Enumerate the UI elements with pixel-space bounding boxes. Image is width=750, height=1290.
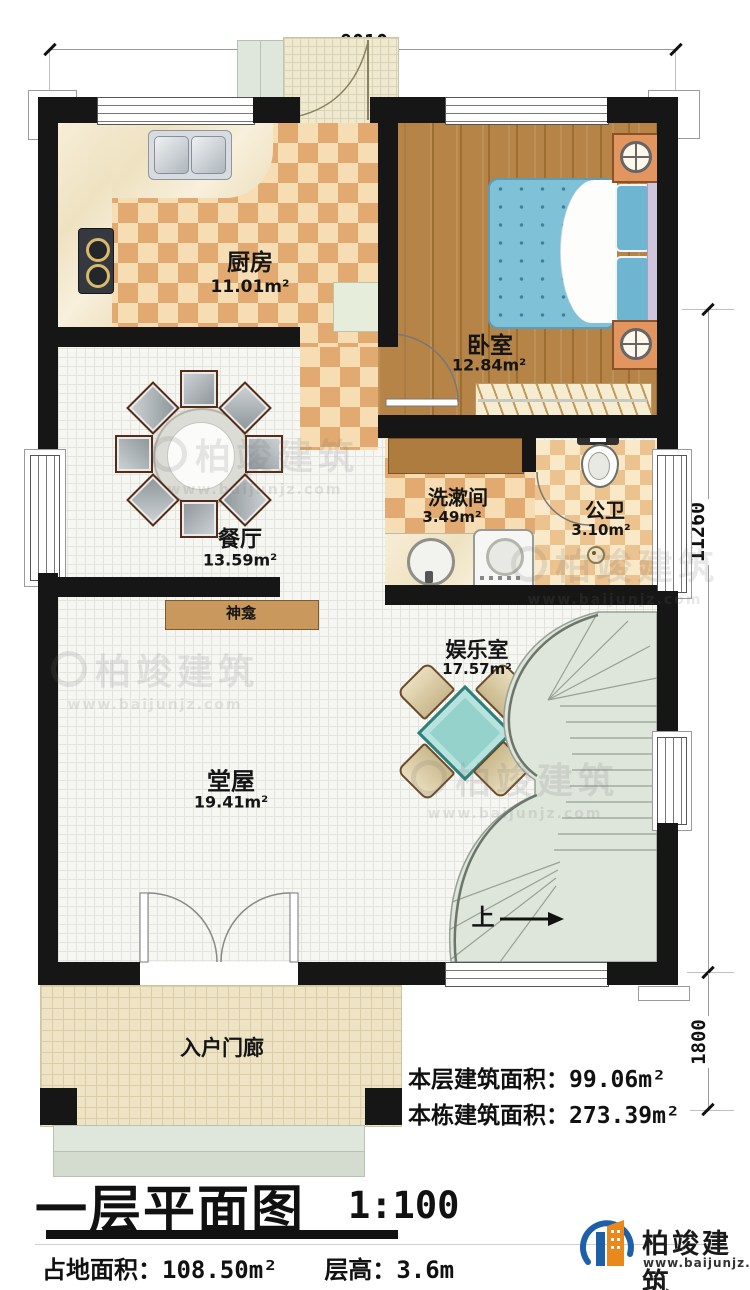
main-door-leaf <box>290 893 298 962</box>
land-area-value: 108.50m² <box>162 1256 278 1284</box>
room-label-entertainment: 娱乐室 <box>446 639 509 661</box>
wall-bedroom <box>378 123 398 347</box>
window <box>657 737 687 825</box>
window <box>30 455 60 581</box>
stairs-up-label: 上 <box>472 906 495 930</box>
building-area-value: 273.39m² <box>569 1103 680 1129</box>
room-area-kitchen: 11.01m² <box>211 279 290 297</box>
room-area-bathroom: 3.10m² <box>571 523 630 539</box>
wall <box>38 105 58 460</box>
room-area-entertainment: 17.57m² <box>442 662 512 678</box>
plan-scale: 1:100 <box>348 1184 459 1227</box>
wall-washroom-bottom <box>385 585 657 605</box>
room-area-washroom: 3.49m² <box>422 510 481 526</box>
room-label-hall: 堂屋 <box>207 769 255 794</box>
wall <box>657 591 678 737</box>
wall <box>657 97 678 455</box>
wall <box>253 97 300 123</box>
bathroom-door-arc <box>537 472 590 525</box>
room-area-dining: 13.59m² <box>203 553 277 570</box>
building-area-line: 本栋建筑面积：273.39m² <box>408 1096 680 1130</box>
floor-height-label: 层高： <box>324 1256 396 1284</box>
wall-dining-hall <box>38 577 280 597</box>
floor-area-line: 本层建筑面积：99.06m² <box>408 1060 666 1094</box>
porch-step <box>53 1125 365 1153</box>
floor-area-label: 本层建筑面积： <box>408 1067 569 1093</box>
wall-kitchen <box>58 327 300 347</box>
land-area-label: 占地面积： <box>42 1256 162 1284</box>
wall-bedroom-bottom <box>378 415 657 438</box>
window <box>445 962 609 987</box>
room-label-bedroom: 卧室 <box>467 334 513 358</box>
window <box>657 455 687 593</box>
room-label-porch: 入户门廊 <box>180 1037 264 1059</box>
wall-bath-stub <box>522 438 536 472</box>
room-label-bathroom: 公卫 <box>585 501 625 522</box>
floor-height-value: 3.6m <box>396 1256 454 1284</box>
company-website: www.baijunjz.com <box>643 1256 750 1270</box>
building-area-label: 本栋建筑面积： <box>408 1103 569 1129</box>
wall <box>607 962 678 985</box>
main-door-arc <box>148 893 217 962</box>
porch-column <box>365 1088 402 1125</box>
floor-plan-page: 8010 11260 1800 <box>0 0 750 1290</box>
kitchen-door-arc <box>289 42 368 118</box>
company-logo-icon <box>580 1212 638 1274</box>
title-underline <box>46 1230 398 1239</box>
floor-area-value: 99.06m² <box>569 1067 666 1093</box>
room-label-washroom: 洗漱间 <box>428 488 488 509</box>
room-area-hall: 19.41m² <box>194 795 268 812</box>
main-door-leaf <box>140 893 148 962</box>
porch-column <box>40 1088 77 1125</box>
room-label-kitchen: 厨房 <box>227 251 273 275</box>
wall <box>298 962 445 985</box>
wall <box>657 823 678 985</box>
wall <box>38 962 140 985</box>
bedroom-door-leaf <box>386 399 458 406</box>
wall <box>38 573 58 962</box>
wall <box>370 97 445 123</box>
bedroom-door-arc <box>390 334 458 402</box>
window <box>97 97 255 125</box>
room-label-shrine: 神龛 <box>226 606 256 622</box>
land-area-line: 占地面积：108.50m² 层高：3.6m <box>42 1250 454 1285</box>
room-area-bedroom: 12.84m² <box>452 358 526 375</box>
room-label-dining: 餐厅 <box>218 528 262 551</box>
main-door-arc <box>221 893 290 962</box>
window <box>445 97 609 125</box>
